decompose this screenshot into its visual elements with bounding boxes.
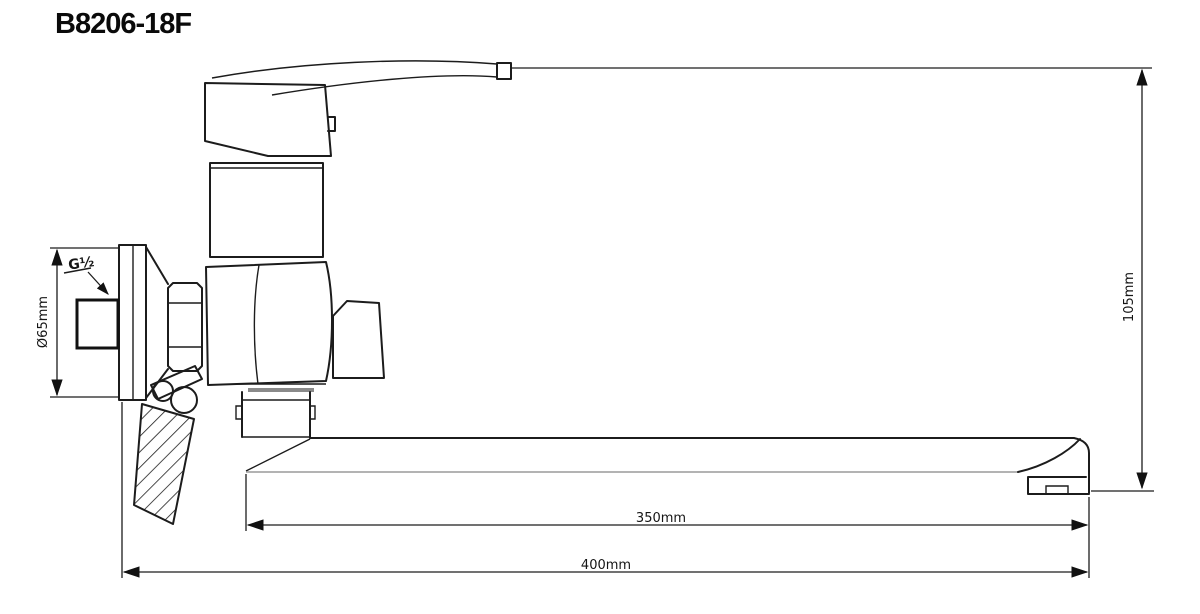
hex-nut-outline [168, 283, 202, 371]
dimension-height: 105mm [511, 68, 1154, 491]
valve-body-front-contour [254, 265, 259, 384]
spout [246, 438, 1089, 494]
wall-inlet-square [77, 300, 118, 348]
hose-connector-hatched-grip [134, 404, 194, 524]
dimension-spout-reach: 350mm [246, 474, 1089, 578]
hose-joint-ball-large [171, 387, 197, 413]
thread-label: G½ [67, 254, 95, 273]
spout-neck-sides [242, 392, 310, 437]
handle-lever [205, 61, 511, 156]
hex-nut [168, 283, 202, 371]
wall-flange [119, 245, 168, 400]
thread-callout: G½ [64, 254, 108, 294]
spout-neck-nuts [236, 406, 315, 419]
height-dim-label: 105mm [1122, 272, 1137, 322]
valve-body [206, 262, 332, 390]
spout-root-taper [246, 439, 310, 471]
diverter-knob [333, 301, 384, 378]
hose-connector [134, 366, 202, 524]
dimension-overall-length: 400mm [122, 402, 1087, 578]
length-dim-label: 400mm [581, 558, 631, 573]
spout-neck [236, 392, 315, 437]
flange-cone-top [146, 247, 168, 284]
flange-dim-label: Ø65mm [36, 296, 51, 348]
spout-top-edge [310, 438, 1089, 493]
model-number-title: B8206-18F [55, 8, 191, 40]
handle-body [205, 83, 331, 156]
spout-tip-sweep [1018, 439, 1080, 472]
valve-body-outline [206, 262, 332, 385]
drawing-sheet: B8206-18F G½ [0, 0, 1200, 614]
cartridge-housing [210, 163, 323, 257]
faucet-technical-drawing: B8206-18F G½ [0, 0, 1200, 614]
reach-dim-label: 350mm [636, 511, 686, 526]
aerator-notch [1046, 486, 1068, 494]
cartridge-housing-outline [210, 163, 323, 257]
thread-leader-line [88, 272, 108, 294]
hose-joint-ball-small [153, 381, 173, 401]
lever-tip-cap [497, 63, 511, 79]
